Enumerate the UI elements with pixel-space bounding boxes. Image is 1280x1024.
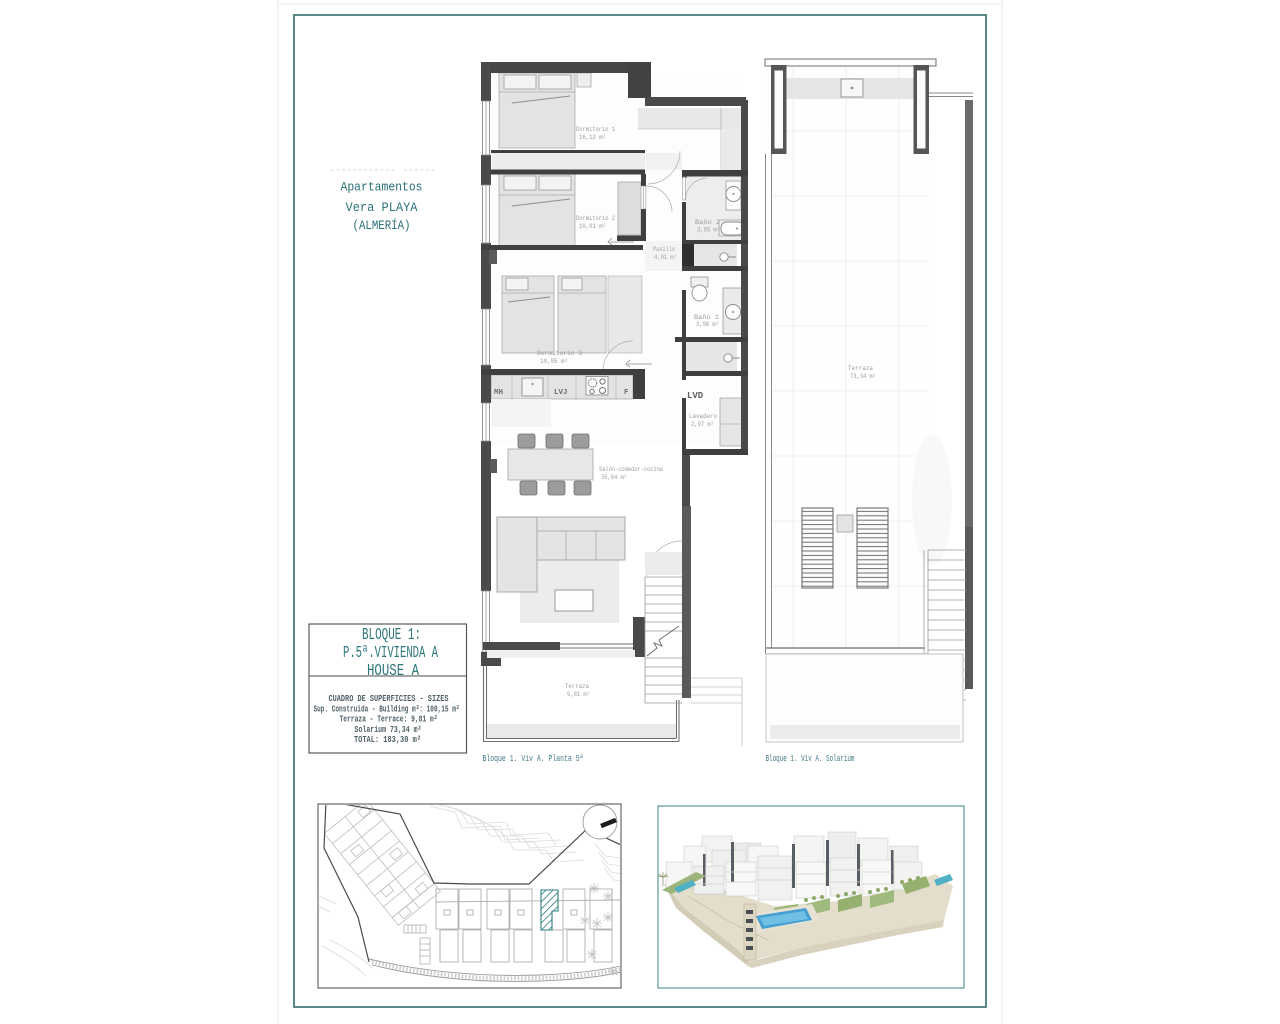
svg-text:CUADRO DE SUPERFICIES - SIZES: CUADRO DE SUPERFICIES - SIZES	[329, 693, 449, 704]
svg-text:Terraza: Terraza	[848, 365, 873, 372]
svg-text:3,98 m²: 3,98 m²	[696, 321, 719, 328]
svg-text:F: F	[624, 389, 629, 397]
svg-text:MH: MH	[494, 389, 503, 397]
svg-text:2,97 m²: 2,97 m²	[691, 421, 714, 428]
svg-text:Dormitorio 1: Dormitorio 1	[576, 126, 615, 133]
svg-text:Pasillo: Pasillo	[653, 246, 675, 253]
svg-text:Dormitorio 3: Dormitorio 3	[537, 350, 582, 357]
svg-text:35,64 m²: 35,64 m²	[601, 474, 627, 481]
svg-text:Dormitorio 2: Dormitorio 2	[576, 215, 615, 222]
svg-text:16,12 m²: 16,12 m²	[579, 134, 606, 141]
svg-text:10,01 m²: 10,01 m²	[579, 223, 606, 230]
svg-text:Terraza - Terrace: 9,81 m²: Terraza - Terrace: 9,81 m²	[340, 714, 438, 725]
svg-text:LVJ: LVJ	[554, 389, 568, 397]
svg-text:Bloque 1. Viv A. Planta 5ª: Bloque 1. Viv A. Planta 5ª	[483, 754, 584, 764]
svg-text:TOTAL: 183,30 m²: TOTAL: 183,30 m²	[354, 734, 421, 745]
svg-text:LVD: LVD	[687, 391, 704, 401]
svg-text:10,05 m²: 10,05 m²	[540, 358, 568, 365]
svg-text:Baño 2: Baño 2	[695, 219, 720, 226]
svg-text:9,81 m²: 9,81 m²	[567, 691, 590, 698]
svg-text:P.5ª.VIVIENDA A: P.5ª.VIVIENDA A	[343, 643, 438, 662]
svg-text:73,34 m²: 73,34 m²	[850, 373, 876, 380]
svg-text:Salón-comedor-cocina: Salón-comedor-cocina	[599, 466, 663, 473]
svg-text:4,01 m²: 4,01 m²	[654, 254, 677, 261]
svg-text:(ALMERÍA): (ALMERÍA)	[353, 218, 411, 233]
svg-text:Lavadero: Lavadero	[689, 413, 717, 420]
svg-text:BLOQUE 1:: BLOQUE 1:	[362, 625, 421, 644]
svg-text:3,65 m²: 3,65 m²	[697, 227, 720, 234]
svg-text:Apartamentos: Apartamentos	[341, 181, 423, 195]
svg-text:Baño 1: Baño 1	[694, 314, 719, 321]
svg-text:HOUSE A: HOUSE A	[367, 661, 419, 680]
svg-text:Terraza: Terraza	[565, 683, 589, 690]
svg-text:Bloque 1. Viv A. Solarium: Bloque 1. Viv A. Solarium	[766, 754, 855, 764]
svg-text:Vera PLAYA: Vera PLAYA	[346, 201, 418, 215]
